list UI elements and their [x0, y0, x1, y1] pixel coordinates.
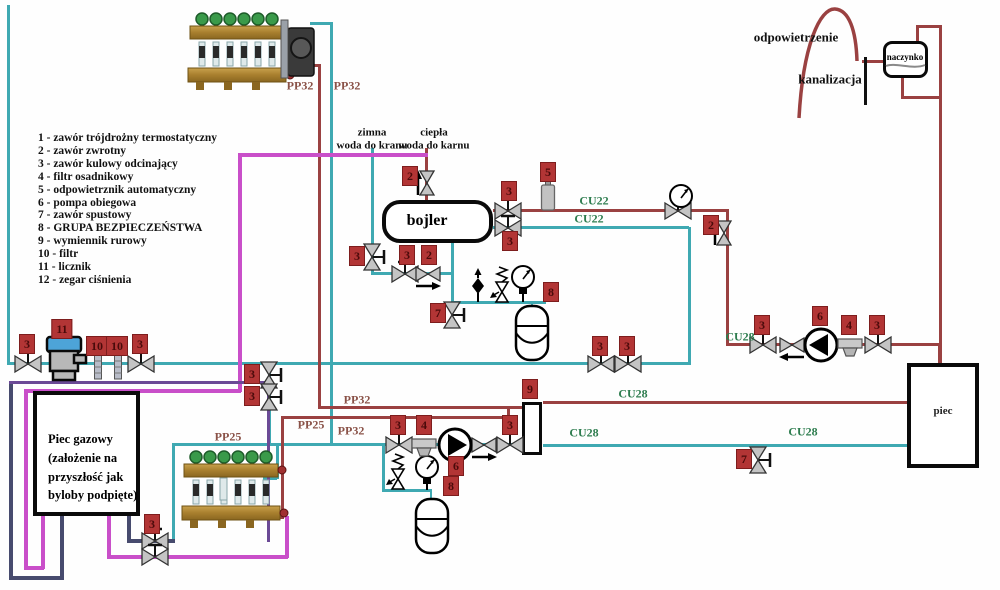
pipe-size-label: CU28 [618, 387, 647, 402]
pipe-size-label: PP25 [298, 418, 325, 433]
pipe-size-label: CU28 [725, 330, 754, 345]
pipe-size-label: PP25 [215, 430, 242, 445]
pipe-size-label: PP32 [334, 79, 361, 94]
pipe-size-label: PP32 [338, 424, 365, 439]
pipe-size-label: CU22 [574, 212, 603, 227]
pipe-size-label: PP32 [287, 79, 314, 94]
pipe-labels-layer: PP32PP32PP32PP25PP32PP25CU22CU22CU28CU28… [0, 0, 1000, 590]
pipe-size-label: PP32 [344, 393, 371, 408]
pipe-size-label: CU28 [788, 425, 817, 440]
schematic-canvas: 1 - zawór trójdrożny termostatyczny2 - z… [0, 0, 1000, 590]
pipe-size-label: CU22 [579, 194, 608, 209]
pipe-size-label: CU28 [569, 426, 598, 441]
